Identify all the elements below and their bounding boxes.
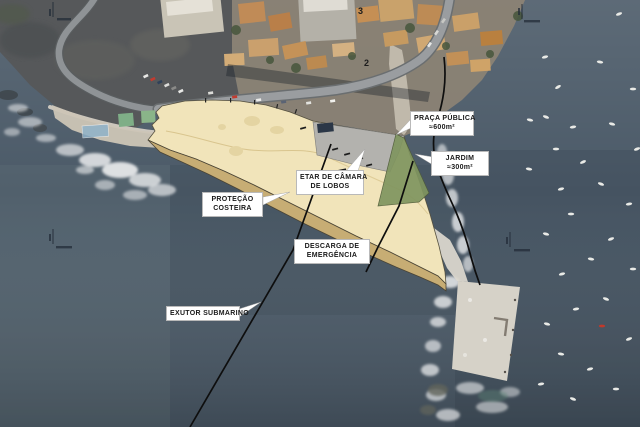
callout-descarga-line2: EMERGÊNCIA <box>298 251 366 260</box>
callout-jardim-line1: JARDIM <box>435 154 485 163</box>
green-structure <box>118 113 134 127</box>
map-number-2: 2 <box>364 59 369 68</box>
green-structure <box>141 110 156 123</box>
callout-etar: ETAR DE CÂMARA DE LOBOS <box>296 170 364 195</box>
callout-praca-line1: PRAÇA PÚBLICA <box>414 114 470 123</box>
pool-court <box>82 124 109 138</box>
callout-protecao-costeira: PROTEÇÃO COSTEIRA <box>202 192 263 217</box>
callout-praca-publica: PRAÇA PÚBLICA ≈600m² <box>410 111 474 136</box>
etar-building <box>317 122 334 133</box>
callout-descarga-line1: DESCARGA DE <box>298 242 366 251</box>
callout-exutor-line1: EXUTOR SUBMARINO <box>170 309 236 318</box>
boat <box>568 213 574 216</box>
callout-exutor-submarino: EXUTOR SUBMARINO <box>166 306 240 321</box>
aerial-map-canvas <box>0 0 640 427</box>
boat <box>613 388 619 391</box>
callout-protecao-line2: COSTEIRA <box>206 204 259 213</box>
callout-etar-line1: ETAR DE CÂMARA <box>300 173 360 182</box>
callout-protecao-line1: PROTEÇÃO <box>206 195 259 204</box>
boat <box>630 268 636 271</box>
boat <box>553 148 559 151</box>
boat <box>599 325 605 328</box>
callout-jardim: JARDIM ≈300m² <box>431 151 489 176</box>
callout-praca-line2: ≈600m² <box>414 123 470 132</box>
map-number-3: 3 <box>358 7 363 16</box>
callout-descarga-emergencia: DESCARGA DE EMERGÊNCIA <box>294 239 370 264</box>
callout-jardim-line2: ≈300m² <box>435 163 485 172</box>
site-plan-figure: PRAÇA PÚBLICA ≈600m² JARDIM ≈300m² ETAR … <box>0 0 640 427</box>
boat <box>630 88 636 91</box>
callout-etar-line2: DE LOBOS <box>300 182 360 191</box>
